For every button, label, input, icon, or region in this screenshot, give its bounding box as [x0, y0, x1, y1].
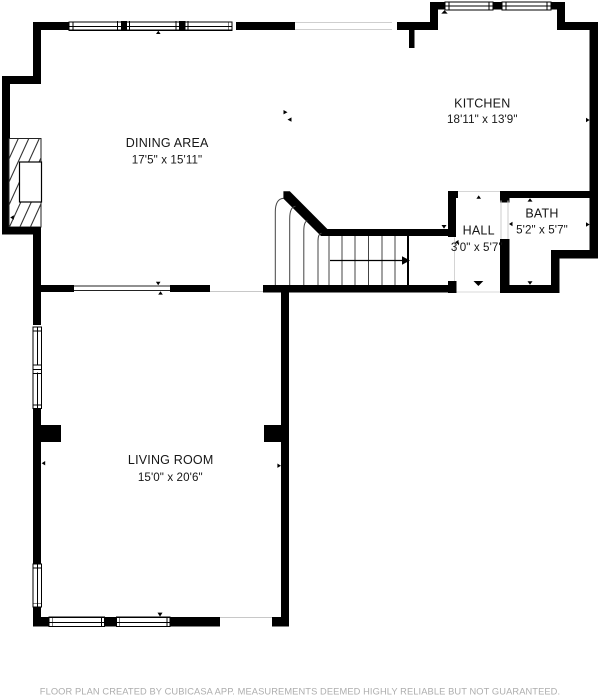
svg-text:5'2" x 5'7": 5'2" x 5'7"	[516, 223, 568, 236]
svg-text:18'11" x 13'9": 18'11" x 13'9"	[447, 113, 518, 126]
svg-text:HALL: HALL	[463, 224, 495, 238]
svg-text:3'0" x 5'7": 3'0" x 5'7"	[451, 241, 503, 254]
svg-text:FLOOR PLAN CREATED BY CUBICASA: FLOOR PLAN CREATED BY CUBICASA APP. MEAS…	[40, 686, 560, 696]
svg-text:DINING AREA: DINING AREA	[126, 136, 209, 150]
svg-text:17'5" x 15'11": 17'5" x 15'11"	[132, 153, 203, 166]
svg-text:KITCHEN: KITCHEN	[454, 97, 510, 111]
svg-text:15'0" x 20'6": 15'0" x 20'6"	[138, 471, 203, 484]
svg-text:BATH: BATH	[525, 206, 558, 220]
svg-text:LIVING ROOM: LIVING ROOM	[128, 453, 214, 467]
